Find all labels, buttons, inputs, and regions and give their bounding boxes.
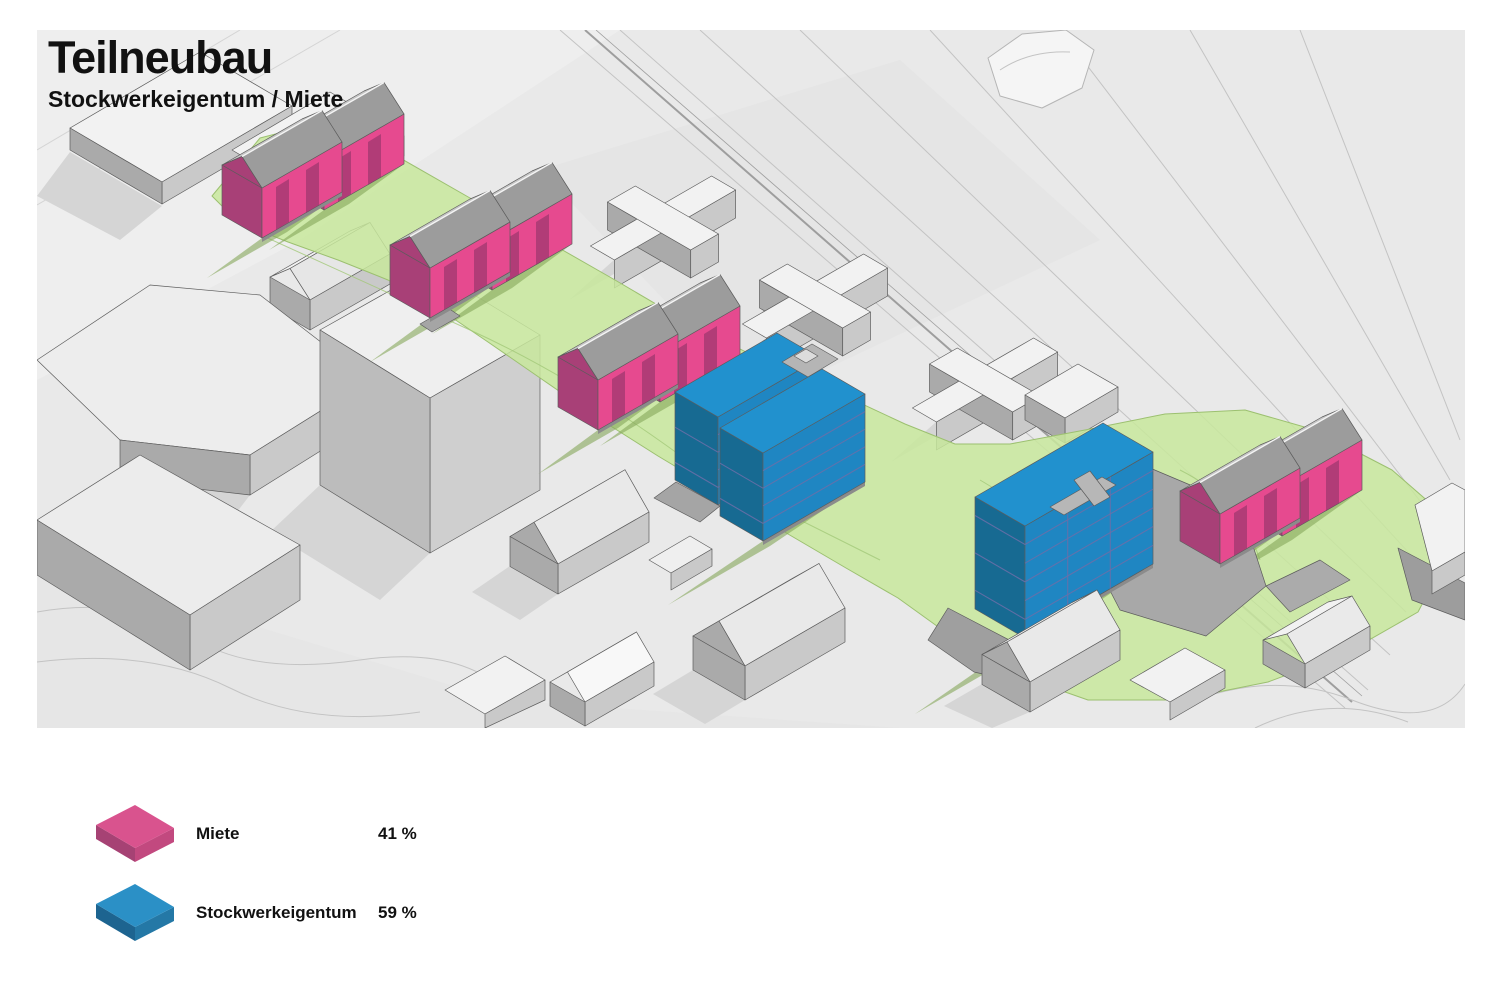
miete-color-box-icon	[92, 803, 178, 865]
legend-label-stockwerkeigentum: Stockwerkeigentum	[196, 903, 378, 923]
legend-row-miete: Miete 41 %	[92, 794, 417, 873]
stockwerkeigentum-color-box-icon	[92, 882, 178, 944]
legend-row-stockwerkeigentum: Stockwerkeigentum 59 %	[92, 873, 417, 952]
legend: Miete 41 % Stockwerkeigentum 59 %	[92, 794, 417, 952]
page-title: Teilneubau	[48, 34, 343, 81]
page: Teilneubau Stockwerkeigentum / Miete Mie…	[0, 0, 1500, 1000]
title-block: Teilneubau Stockwerkeigentum / Miete	[48, 34, 343, 113]
site-plan-render	[37, 30, 1465, 728]
legend-value-stockwerkeigentum: 59 %	[378, 903, 417, 923]
page-subtitle: Stockwerkeigentum / Miete	[48, 86, 343, 113]
legend-value-miete: 41 %	[378, 824, 417, 844]
legend-label-miete: Miete	[196, 824, 378, 844]
